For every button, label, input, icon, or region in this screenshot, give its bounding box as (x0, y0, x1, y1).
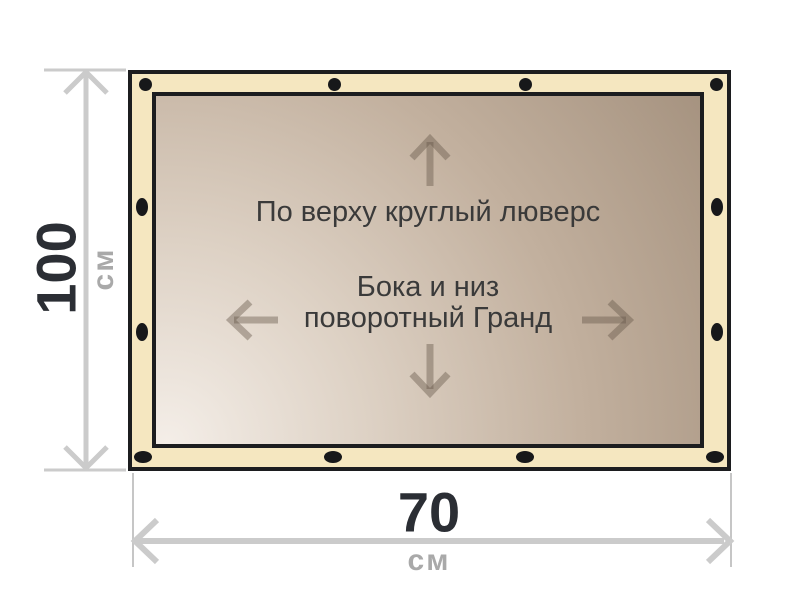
oval-grommet (136, 198, 148, 216)
height-value: 100 (24, 221, 89, 314)
sides-bottom-label-line1: Бока и низ (152, 272, 704, 303)
arrowhead-down-icon (65, 447, 107, 468)
round-grommet (139, 78, 152, 91)
sides-bottom-label: Бока и низ поворотный Гранд (152, 272, 704, 334)
round-grommet (710, 78, 723, 91)
oval-grommet (134, 451, 152, 463)
height-unit: см (87, 248, 121, 291)
oval-grommet (711, 198, 723, 216)
oval-grommet (324, 451, 342, 463)
product-dimension-diagram: По верху круглый люверс Бока и низ повор… (0, 0, 800, 600)
banner-canvas (152, 92, 704, 448)
top-edge-label: По верху круглый люверс (152, 196, 704, 229)
oval-grommet (711, 323, 723, 341)
arrowhead-left-icon (135, 520, 157, 562)
width-unit: см (408, 544, 451, 578)
oval-grommet (136, 323, 148, 341)
oval-grommet (516, 451, 534, 463)
width-value: 70 (398, 480, 460, 545)
round-grommet (519, 78, 532, 91)
oval-grommet (706, 451, 724, 463)
round-grommet (328, 78, 341, 91)
arrowhead-up-icon (65, 72, 107, 93)
sides-bottom-label-line2: поворотный Гранд (152, 303, 704, 334)
arrowhead-right-icon (708, 520, 730, 562)
